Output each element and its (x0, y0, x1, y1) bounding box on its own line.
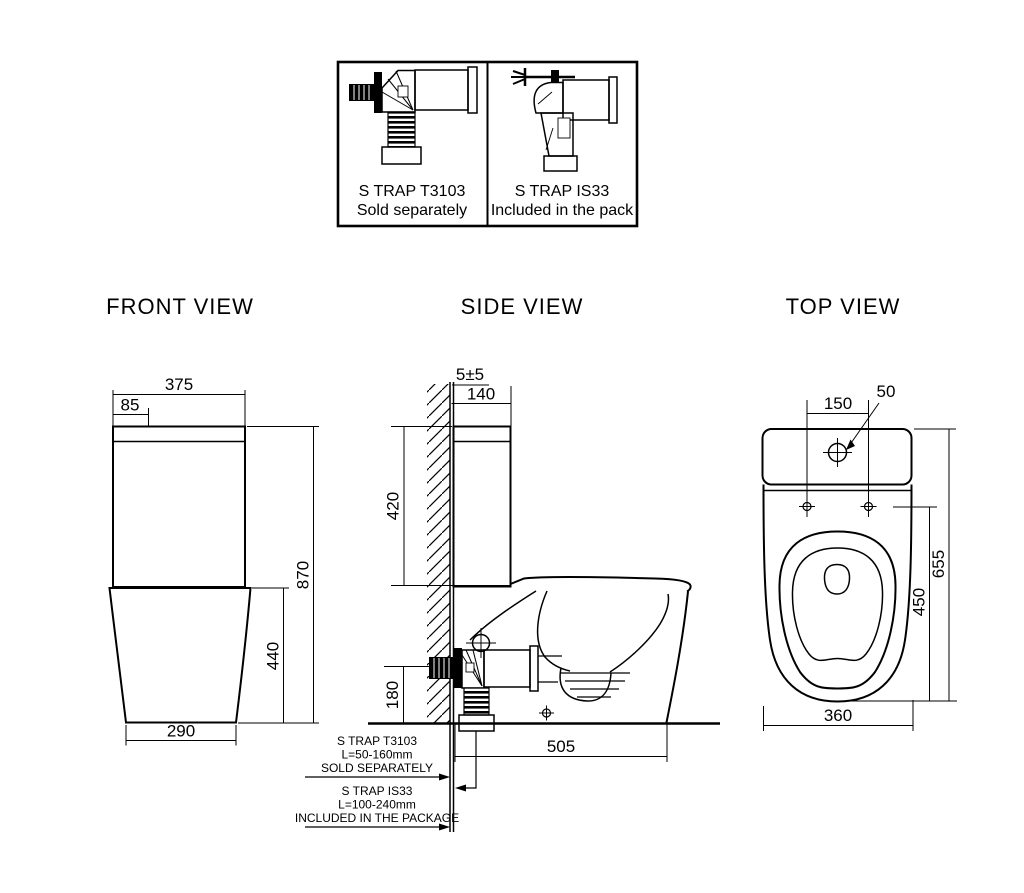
top-view-title: TOP VIEW (786, 294, 901, 319)
trap-left-subtitle: Sold separately (357, 202, 467, 219)
dim-top-total-depth: 655 (929, 550, 948, 578)
trap-left-title: S TRAP T3103 (359, 183, 466, 200)
canvas (0, 0, 1024, 893)
dim-front-height: 870 (294, 561, 313, 589)
dim-top-bowl-depth: 450 (910, 588, 929, 616)
is33-range: L=100-240mm (338, 798, 416, 812)
technical-drawing: S TRAP T3103 Sold separately S TRAP IS33… (0, 0, 1024, 893)
is33-name: S TRAP IS33 (342, 784, 413, 798)
t3103-note: SOLD SEPARATELY (321, 761, 433, 775)
side-view-title: SIDE VIEW (461, 294, 584, 319)
dim-side-outlet-height: 180 (383, 681, 402, 709)
t3103-range: L=50-160mm (341, 748, 412, 762)
dim-side-tank-depth: 140 (467, 385, 495, 404)
trap-right-title: S TRAP IS33 (515, 183, 610, 200)
front-view-title: FRONT VIEW (106, 294, 254, 319)
dim-front-base-height: 440 (264, 642, 283, 670)
dim-top-hole-diameter: 50 (877, 382, 896, 401)
dim-front-lid-offset: 85 (121, 396, 140, 415)
dim-top-hole-spacing: 150 (824, 394, 852, 413)
dim-side-tank-height: 420 (384, 492, 403, 520)
dim-side-wall-gap: 5±5 (456, 365, 484, 384)
dim-side-floor-depth: 505 (547, 737, 575, 756)
trap-right-subtitle: Included in the pack (491, 202, 634, 219)
dim-front-base-width: 290 (167, 722, 195, 741)
dim-top-width: 360 (824, 706, 852, 725)
dim-front-width: 375 (165, 375, 193, 394)
t3103-name: S TRAP T3103 (337, 734, 417, 748)
is33-note: INCLUDED IN THE PACKAGE (295, 811, 459, 825)
